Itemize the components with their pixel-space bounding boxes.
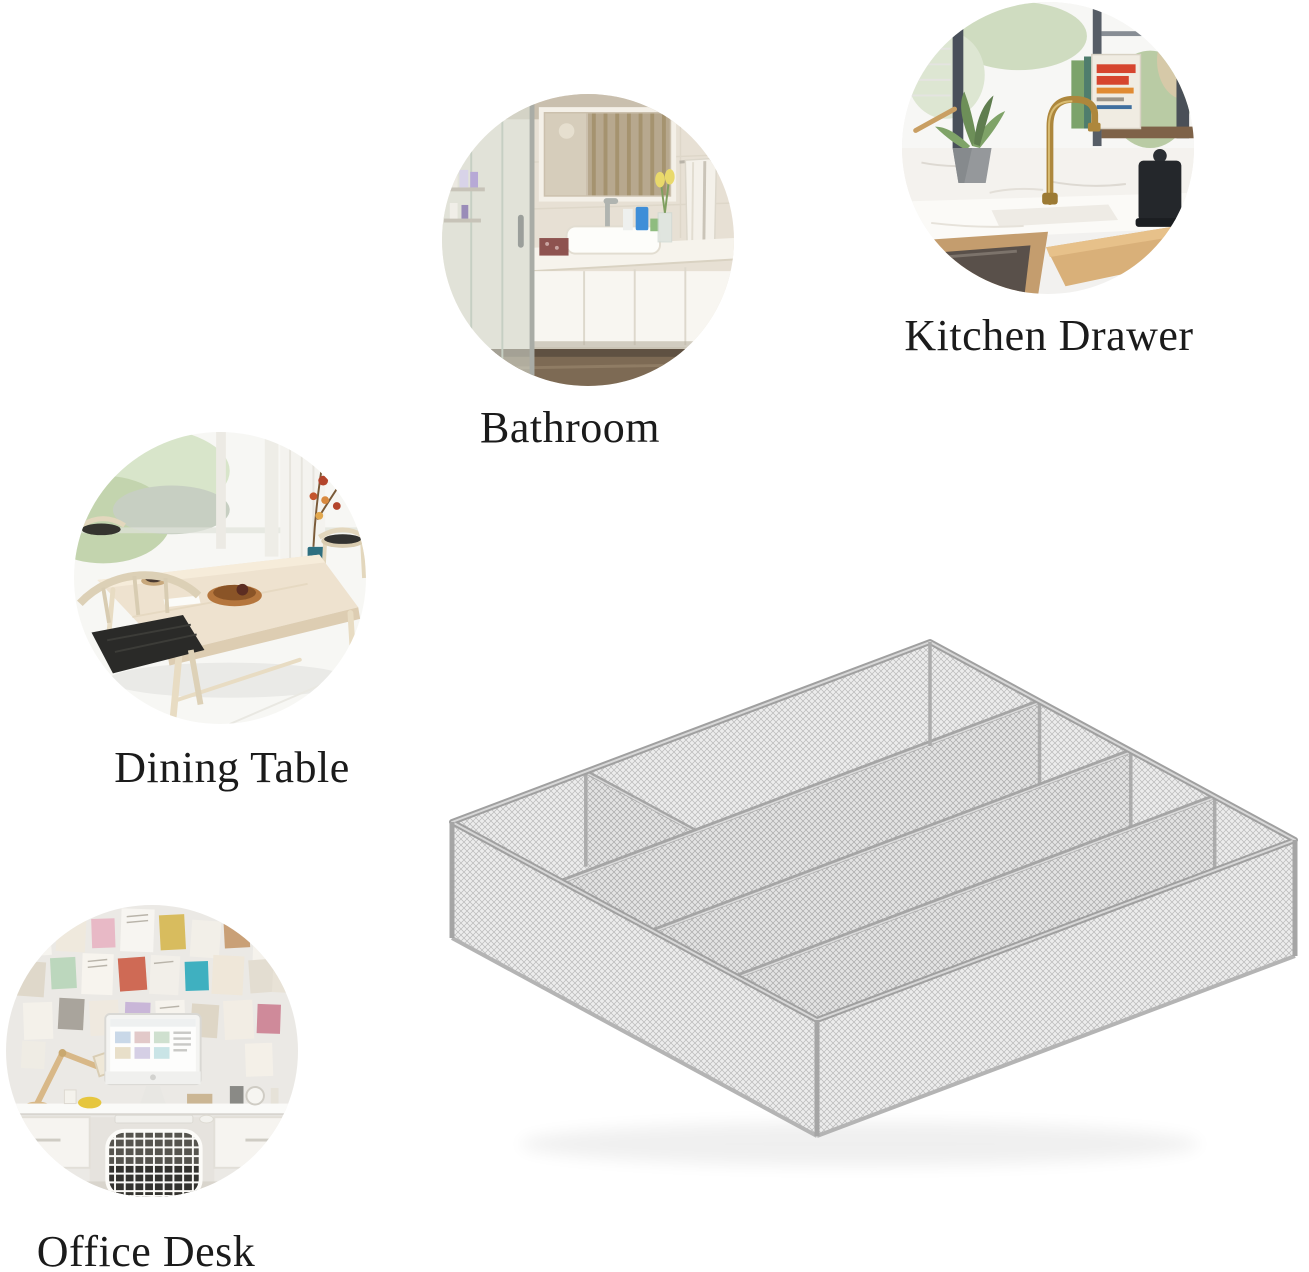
office-caption: Office Desk <box>0 1226 316 1272</box>
office-photo <box>6 905 298 1197</box>
mesh-cutlery-tray <box>440 632 1300 1180</box>
dining-caption: Dining Table <box>62 742 402 793</box>
product-collage: Kitchen Drawer <box>0 0 1309 1272</box>
bathroom-caption: Bathroom <box>400 402 740 453</box>
wire-chair <box>107 1131 200 1197</box>
dining-photo <box>74 432 366 724</box>
shower-enclosure <box>442 94 534 386</box>
floor <box>442 349 734 386</box>
lower-cabinet <box>902 232 1048 294</box>
tray-shadow <box>520 1122 1200 1166</box>
cookbooks <box>1071 55 1140 129</box>
bathroom-photo <box>442 94 734 386</box>
kitchen-caption: Kitchen Drawer <box>879 310 1219 361</box>
mirror <box>541 110 673 200</box>
kitchen-photo <box>902 2 1194 294</box>
table-shadow <box>108 663 351 698</box>
